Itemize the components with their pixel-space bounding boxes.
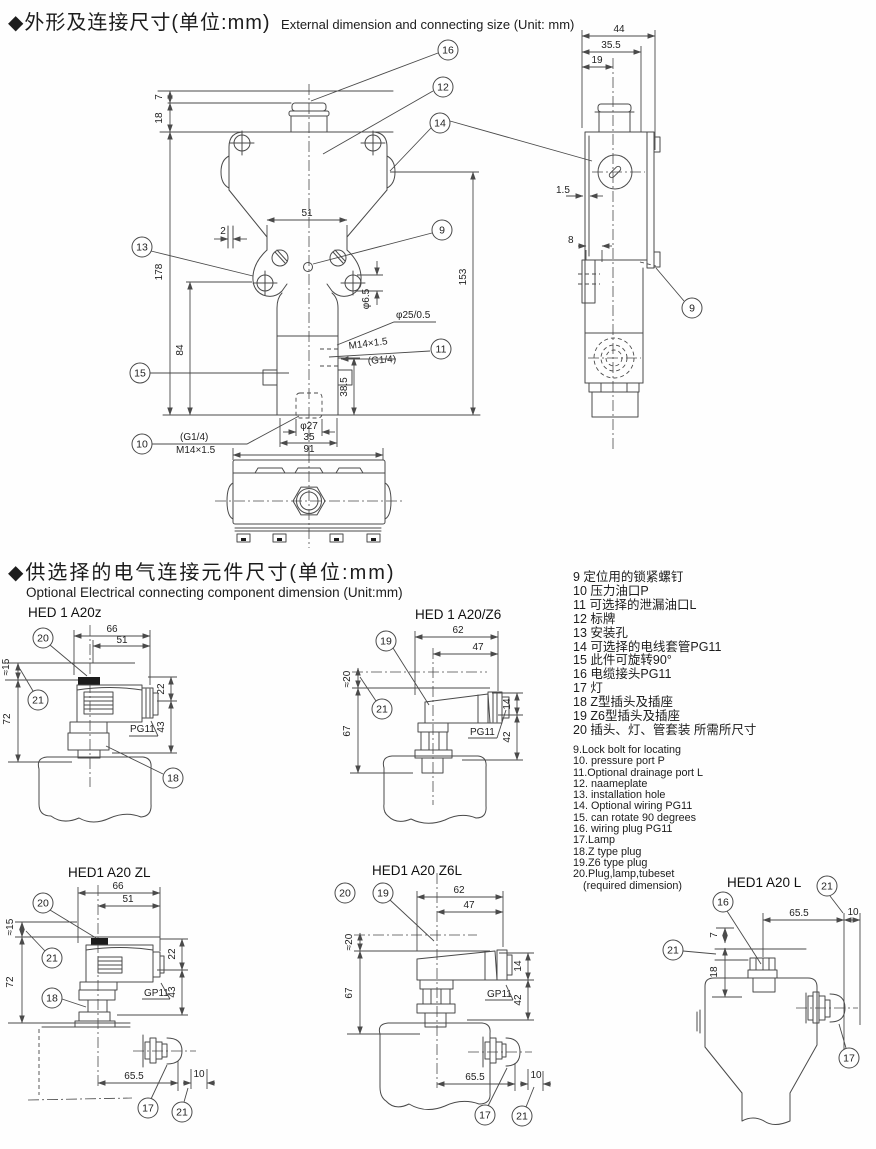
dim-51: 51 [116, 635, 128, 646]
callout-21: 21 [176, 1107, 188, 1119]
callout-14: 14 [434, 118, 446, 130]
dim-7: 7 [154, 94, 165, 100]
dim-dia6-5: φ6.5 [361, 288, 372, 309]
port-g14-label: (G1/4) [180, 432, 208, 443]
callout-10: 10 [136, 439, 148, 451]
electrical-connectors-drawing: HED 1 A20z 66 51 ≈15 72 22 43 PG11 [0, 555, 876, 1149]
dim-19: 19 [591, 55, 603, 66]
drawing-hed1a20z: HED 1 A20z 66 51 ≈15 72 22 43 PG11 [1, 605, 183, 822]
callout-21: 21 [32, 695, 44, 707]
dim-62: 62 [452, 625, 464, 636]
front-view-callouts: 16 12 14 13 9 15 11 10 [130, 40, 592, 454]
callout-16: 16 [717, 897, 729, 909]
dim-42: 42 [502, 731, 513, 743]
callout-11: 11 [436, 344, 447, 356]
drawing-label: HED1 A20 L [727, 875, 802, 890]
callout-20: 20 [37, 898, 49, 910]
callout-18: 18 [167, 773, 179, 785]
callout-18: 18 [46, 993, 58, 1005]
dim-62: 62 [453, 885, 465, 896]
callout-21: 21 [821, 881, 833, 893]
callout-13: 13 [136, 242, 148, 254]
dim-g14: (G1/4) [367, 354, 396, 367]
dim-47: 47 [463, 900, 475, 911]
dim-35: 35 [303, 432, 315, 443]
dim-84: 84 [175, 344, 186, 356]
dim-42: 42 [513, 994, 524, 1006]
dim-20: ≈20 [344, 933, 355, 950]
dim-15: ≈15 [1, 658, 12, 675]
dim-22: 22 [167, 948, 178, 960]
dim-14: 14 [513, 960, 524, 972]
gland-label: PG11 [470, 727, 495, 738]
dim-10: 10 [530, 1070, 542, 1081]
dim-43: 43 [156, 721, 167, 733]
drawing-hed1a20l: HED1 A20 L 21 65.5 10 7 18 [663, 875, 860, 1125]
dim-20: ≈20 [342, 670, 353, 687]
callout-15: 15 [134, 368, 146, 380]
side-view: 44 35.5 19 1.5 8 [556, 24, 702, 452]
dim-65-5: 65.5 [124, 1071, 144, 1082]
callout-21: 21 [516, 1111, 528, 1123]
dim-2: 2 [220, 226, 226, 237]
callout-12: 12 [437, 82, 449, 94]
dim-72: 72 [5, 976, 16, 988]
dim-65-5: 65.5 [465, 1072, 485, 1083]
dim-72: 72 [2, 713, 13, 725]
callout-19: 19 [380, 636, 392, 648]
drawing-label: HED 1 A20z [28, 605, 102, 620]
dim-65-5: 65.5 [789, 908, 809, 919]
callout-9-front: 9 [439, 225, 445, 237]
dim-153: 153 [458, 268, 469, 285]
gland-label: PG11 [130, 724, 155, 735]
drawing-hed1a20zl: HED1 A20 ZL 66 51 ≈15 72 22 43 GP11 [5, 865, 215, 1122]
dim-178: 178 [154, 263, 165, 280]
dim-14: 14 [502, 698, 513, 710]
dim-67: 67 [344, 987, 355, 999]
drawing-label: HED 1 A20/Z6 [415, 607, 501, 622]
callout-17: 17 [843, 1053, 855, 1065]
drawing-label: HED1 A20 ZL [68, 865, 151, 880]
callout-21: 21 [376, 704, 388, 716]
dim-dia27: φ27 [300, 421, 318, 432]
drawing-label: HED1 A20 Z6L [372, 863, 463, 878]
dim-15: ≈15 [5, 918, 16, 935]
bottom-view [215, 452, 403, 548]
callout-9-side: 9 [689, 303, 695, 315]
callout-21: 21 [46, 953, 58, 965]
dim-51: 51 [301, 208, 313, 219]
front-view-dimensions: 7 18 178 84 51 2 153 φ6.5 φ25/0.5 M14×1.… [152, 91, 479, 460]
dim-10: 10 [847, 907, 859, 918]
callout-19: 19 [377, 888, 389, 900]
dim-67: 67 [342, 725, 353, 737]
dim-47: 47 [472, 642, 484, 653]
callout-17: 17 [142, 1103, 154, 1115]
datasheet-page: ◆外形及连接尺寸(单位:mm) External dimension and c… [0, 0, 876, 1149]
dim-1-5: 1.5 [556, 185, 570, 196]
port-m14-label: M14×1.5 [176, 445, 216, 456]
callout-17: 17 [479, 1110, 491, 1122]
dim-51: 51 [122, 894, 134, 905]
gland-label: GP11 [144, 988, 169, 999]
callout-20: 20 [339, 888, 351, 900]
dim-66: 66 [106, 624, 118, 635]
callout-16: 16 [442, 45, 454, 57]
dim-44: 44 [613, 24, 625, 35]
callout-20: 20 [37, 633, 49, 645]
drawing-hed1a20z6l: HED1 A20 Z6L 62 47 ≈20 67 14 42 GP11 [335, 863, 551, 1126]
front-view [158, 84, 480, 460]
dim-dia25: φ25/0.5 [396, 310, 431, 321]
dim-38-5: 38.5 [339, 377, 350, 397]
dim-m14: M14×1.5 [348, 336, 389, 352]
dim-18: 18 [154, 112, 165, 124]
dim-8: 8 [568, 235, 574, 246]
dim-35-5: 35.5 [601, 40, 621, 51]
external-dimension-drawing: 7 18 178 84 51 2 153 φ6.5 φ25/0.5 M14×1.… [0, 0, 876, 555]
drawing-hed1a20z6: HED 1 A20/Z6 62 47 ≈20 67 14 42 PG11 [342, 607, 523, 823]
callout-21: 21 [667, 945, 679, 957]
dim-10: 10 [193, 1069, 205, 1080]
dim-66: 66 [112, 881, 124, 892]
dim-18: 18 [709, 966, 720, 978]
dim-7: 7 [709, 932, 720, 938]
